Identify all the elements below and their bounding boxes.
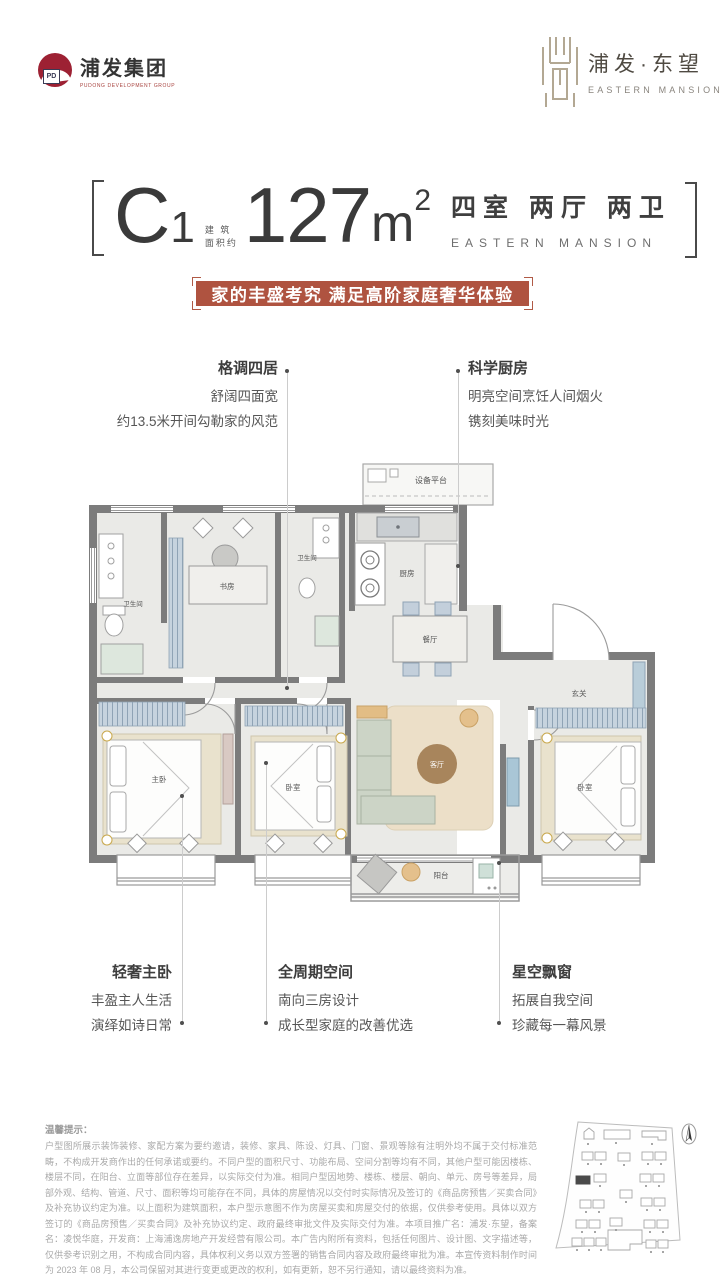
room-label-bedroom2: 卧室 [286, 782, 301, 792]
feature-line: 镌刻美味时光 [468, 409, 698, 434]
room-label-living: 客厅 [430, 760, 444, 769]
feature-master: 轻奢主卧 丰盈主人生活 演绎如诗日常 [40, 962, 172, 1038]
left-bracket [92, 180, 104, 256]
project-logo: 浦发·东望 EASTERN MANSION [540, 33, 723, 109]
floor-plan: 设备平台 [85, 448, 660, 933]
site-plan [548, 1112, 698, 1264]
feature-line: 丰盈主人生活 [40, 988, 172, 1013]
disclaimer: 温馨提示： 户型图所展示装饰装修、家配方案为要约邀请，装修、家具、陈设、灯具、门… [45, 1122, 537, 1279]
room-label-bedroom3: 卧室 [578, 782, 593, 792]
feature-line: 珍藏每一幕风景 [512, 1013, 692, 1038]
leader-dot [497, 861, 501, 865]
leader-dot [264, 1021, 268, 1025]
unit-number: 1 [170, 206, 194, 250]
feature-line: 拓展自我空间 [512, 988, 692, 1013]
unit-letter: C [114, 180, 170, 250]
group-subtitle: PUDONG DEVELOPMENT GROUP [80, 83, 175, 89]
equipment-platform: 设备平台 [363, 464, 493, 505]
leader-line [287, 372, 288, 688]
leader-dot [285, 369, 289, 373]
leader-dot [497, 1021, 501, 1025]
unit-title: C 1 建 筑 面积约 127 m 2 四室 两厅 两卫 EASTERN MAN… [92, 180, 697, 258]
disclaimer-body: 户型图所展示装饰装修、家配方案为要约邀请，装修、家具、陈设、灯具、门窗、景观等除… [45, 1139, 537, 1279]
leader-line [182, 797, 183, 1023]
feature-title: 格调四居 [60, 358, 278, 380]
room-label-kitchen: 厨房 [400, 568, 415, 578]
layout-english: EASTERN MANSION [451, 236, 671, 250]
leader-dot [180, 794, 184, 798]
leader-dot [285, 686, 289, 690]
slogan-badge: 家的丰盛考究 满足高阶家庭奢华体验 [192, 277, 533, 310]
area-unit: m [371, 198, 414, 250]
feature-line: 明亮空间烹饪人间烟火 [468, 384, 698, 409]
group-logo: PD 浦发集团 PUDONG DEVELOPMENT GROUP [38, 52, 175, 89]
room-label-balcony: 阳台 [434, 870, 449, 880]
room-label-study: 书房 [220, 581, 235, 591]
room-label-equipment: 设备平台 [415, 475, 447, 485]
layout-text: 四室 两厅 两卫 [451, 188, 671, 224]
area-superscript: 2 [414, 186, 431, 216]
feature-title: 科学厨房 [468, 358, 698, 380]
group-logo-icon: PD [38, 53, 74, 89]
feature-kitchen: 科学厨房 明亮空间烹饪人间烟火 镌刻美味时光 [468, 358, 698, 434]
room-label-dining: 餐厅 [423, 635, 438, 644]
disclaimer-title: 温馨提示： [45, 1122, 537, 1136]
leader-line [266, 764, 267, 1023]
room-label-bath1: 卫生间 [123, 599, 143, 608]
area-note: 建 筑 面积约 [205, 224, 238, 250]
bedroom-3: 卧室 [541, 733, 641, 850]
right-bracket [685, 182, 697, 258]
area-value: 127 [244, 180, 371, 250]
feature-line: 成长型家庭的改善优选 [278, 1013, 488, 1038]
logo-monogram: PD [43, 69, 60, 84]
feature-baywindow: 星空飘窗 拓展自我空间 珍藏每一幕风景 [512, 962, 692, 1038]
group-name: 浦发集团 [80, 52, 175, 81]
feature-line: 演绎如诗日常 [40, 1013, 172, 1038]
room-label-foyer: 玄关 [572, 688, 587, 698]
leader-line [499, 864, 500, 1023]
north-arrow-icon [682, 1124, 696, 1144]
leader-dot [456, 564, 460, 568]
leader-dot [456, 369, 460, 373]
project-logo-icon [540, 33, 580, 109]
feature-line: 舒阔四面宽 [60, 384, 278, 409]
slogan-text: 家的丰盛考究 满足高阶家庭奢华体验 [196, 281, 529, 306]
room-label-bath2: 卫生间 [297, 553, 317, 562]
feature-four-rooms: 格调四居 舒阔四面宽 约13.5米开间勾勒家的风范 [60, 358, 278, 434]
feature-line: 约13.5米开间勾勒家的风范 [60, 409, 278, 434]
poster-page: PD 浦发集团 PUDONG DEVELOPMENT GROUP 浦发·东望 E… [0, 0, 723, 1280]
leader-dot [264, 761, 268, 765]
living-room: 客厅 [357, 706, 519, 830]
feature-title: 轻奢主卧 [40, 962, 172, 984]
feature-lifecycle: 全周期空间 南向三房设计 成长型家庭的改善优选 [278, 962, 488, 1038]
room-label-master: 主卧 [152, 774, 167, 784]
project-subtitle: EASTERN MANSION [588, 85, 723, 95]
feature-title: 全周期空间 [278, 962, 488, 984]
feature-line: 南向三房设计 [278, 988, 488, 1013]
leader-dot [180, 1021, 184, 1025]
project-name: 浦发·东望 [588, 48, 723, 78]
feature-title: 星空飘窗 [512, 962, 692, 984]
leader-line [458, 372, 459, 566]
